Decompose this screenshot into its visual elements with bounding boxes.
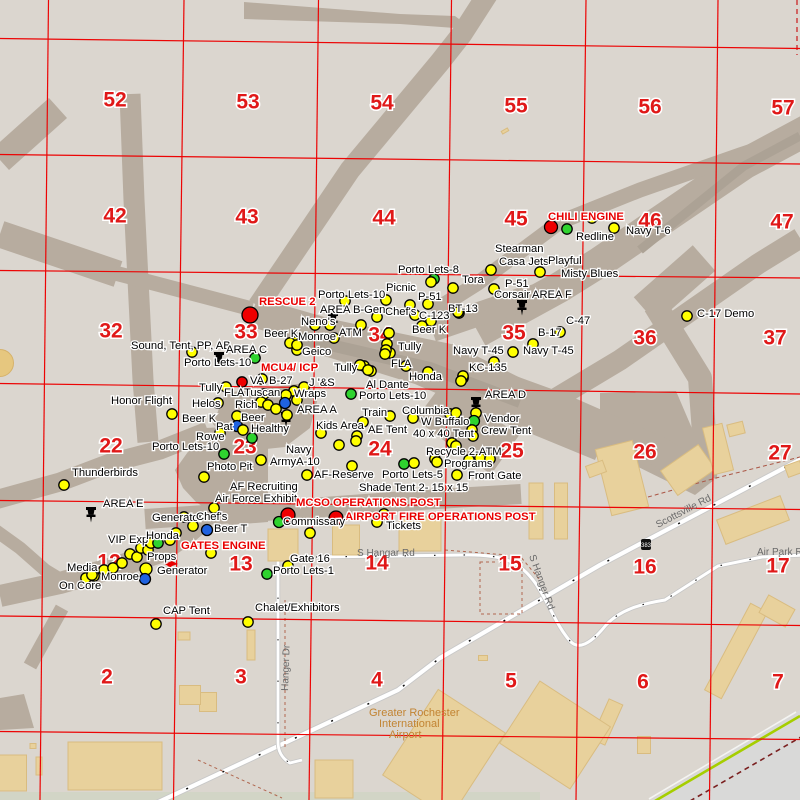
svg-text:43: 43 xyxy=(235,206,258,229)
svg-text:Media: Media xyxy=(67,562,98,574)
svg-text:Chef's: Chef's xyxy=(385,306,417,318)
svg-text:Honor Flight: Honor Flight xyxy=(111,395,173,407)
svg-text:Tickets: Tickets xyxy=(386,520,421,532)
svg-text:3: 3 xyxy=(235,666,247,689)
svg-text:Porto Lets-10: Porto Lets-10 xyxy=(359,390,426,402)
svg-text:Navy T-45: Navy T-45 xyxy=(523,345,574,357)
svg-text:Crew Tent: Crew Tent xyxy=(481,425,532,437)
svg-text:Honda: Honda xyxy=(409,371,443,383)
svg-text:Navy T-45: Navy T-45 xyxy=(453,345,504,357)
svg-text:45: 45 xyxy=(504,208,528,231)
svg-text:Chef's: Chef's xyxy=(196,511,228,523)
svg-text:Rich: Rich xyxy=(235,399,257,411)
svg-text:Generator: Generator xyxy=(157,565,208,577)
svg-text:Beer K: Beer K xyxy=(412,324,447,336)
svg-text:Monroe: Monroe xyxy=(298,331,336,343)
svg-text:7: 7 xyxy=(772,671,784,694)
svg-text:36: 36 xyxy=(633,327,656,350)
svg-text:B-27: B-27 xyxy=(269,375,293,387)
svg-text:C-123: C-123 xyxy=(419,310,449,322)
svg-text:BT-13: BT-13 xyxy=(448,303,478,315)
svg-text:Misty Blues: Misty Blues xyxy=(561,268,619,280)
svg-text:6: 6 xyxy=(637,671,649,694)
svg-text:55: 55 xyxy=(504,95,528,118)
svg-text:Porto Lets-8: Porto Lets-8 xyxy=(398,264,459,276)
svg-text:26: 26 xyxy=(633,441,656,464)
svg-text:53: 53 xyxy=(236,91,259,114)
svg-text:Chalet/Exhibitors: Chalet/Exhibitors xyxy=(255,602,340,614)
svg-text:Navy T-6: Navy T-6 xyxy=(626,225,671,237)
svg-text:CHILI ENGINE: CHILI ENGINE xyxy=(548,211,624,223)
svg-text:13: 13 xyxy=(229,553,252,576)
svg-text:Air Force Exhibit: Air Force Exhibit xyxy=(215,493,298,505)
svg-text:Redline: Redline xyxy=(576,231,614,243)
svg-text:Helos: Helos xyxy=(192,398,221,410)
svg-text:Porto Lets-1: Porto Lets-1 xyxy=(273,565,334,577)
svg-text:54: 54 xyxy=(370,92,394,115)
svg-text:Stearman: Stearman xyxy=(495,243,544,255)
svg-text:Commissary: Commissary xyxy=(283,516,346,528)
svg-text:42: 42 xyxy=(103,205,126,228)
svg-text:Geico: Geico xyxy=(302,346,331,358)
svg-text:Navy: Navy xyxy=(286,444,312,456)
svg-text:Neno's: Neno's xyxy=(301,316,336,328)
svg-text:4: 4 xyxy=(371,669,383,692)
svg-text:32: 32 xyxy=(99,320,122,343)
svg-text:Tully: Tully xyxy=(334,362,358,374)
svg-text:Healthy: Healthy xyxy=(251,423,289,435)
svg-text:VIP Exp: VIP Exp xyxy=(108,534,148,546)
svg-text:Wraps: Wraps xyxy=(294,388,327,400)
svg-text:Props: Props xyxy=(147,551,177,563)
svg-text:37: 37 xyxy=(763,327,786,350)
svg-text:AF Recruiting: AF Recruiting xyxy=(230,481,298,493)
svg-text:40 x 40 Tent: 40 x 40 Tent xyxy=(413,428,475,440)
svg-text:5: 5 xyxy=(505,670,517,693)
svg-text:VA: VA xyxy=(250,375,265,387)
svg-text:FLA: FLA xyxy=(391,358,412,370)
svg-text:Kids Area: Kids Area xyxy=(316,420,365,432)
svg-text:MCU4/ ICP: MCU4/ ICP xyxy=(261,362,319,374)
svg-text:Honda: Honda xyxy=(146,530,180,542)
svg-text:AREA B-Gen: AREA B-Gen xyxy=(320,304,385,316)
svg-text:Thunderbirds: Thunderbirds xyxy=(72,467,138,479)
svg-text:AREA A: AREA A xyxy=(297,404,337,416)
svg-text:Programs: Programs xyxy=(444,458,493,470)
svg-text:AIRPORT FIRE OPERATIONS POST: AIRPORT FIRE OPERATIONS POST xyxy=(345,511,536,523)
svg-text:52: 52 xyxy=(103,89,126,112)
svg-text:C-17 Demo: C-17 Demo xyxy=(697,308,754,320)
svg-text:Tully: Tully xyxy=(199,382,223,394)
svg-text:Beer K: Beer K xyxy=(182,413,217,425)
svg-text:Sound, Tent, PP, AB: Sound, Tent, PP, AB xyxy=(131,340,231,352)
svg-text:Tuscan: Tuscan xyxy=(244,387,280,399)
svg-text:Porto Lets-10: Porto Lets-10 xyxy=(152,441,219,453)
svg-text:Vendor: Vendor xyxy=(484,413,520,425)
svg-text:S Hangar Rd: S Hangar Rd xyxy=(357,548,415,559)
svg-text:Gate 16: Gate 16 xyxy=(290,553,330,565)
svg-text:2: 2 xyxy=(101,666,113,689)
svg-text:FLA: FLA xyxy=(224,387,245,399)
svg-text:Train: Train xyxy=(362,407,387,419)
svg-text:ATM: ATM xyxy=(339,327,362,339)
svg-text:Beer K: Beer K xyxy=(264,328,299,340)
svg-text:AREA F: AREA F xyxy=(532,289,572,301)
svg-text:ArmyA-10: ArmyA-10 xyxy=(270,456,320,468)
svg-text:33: 33 xyxy=(234,321,257,344)
svg-text:22: 22 xyxy=(99,435,122,458)
svg-text:56: 56 xyxy=(638,96,661,119)
svg-text:Beer T: Beer T xyxy=(214,523,248,535)
svg-text:B-17: B-17 xyxy=(538,327,562,339)
svg-text:57: 57 xyxy=(771,97,794,120)
svg-text:Corsair: Corsair xyxy=(494,289,530,301)
svg-text:Monroe: Monroe xyxy=(101,571,139,583)
svg-text:AE Tent: AE Tent xyxy=(368,424,408,436)
svg-text:AREA E: AREA E xyxy=(103,498,143,510)
svg-text:RESCUE 2: RESCUE 2 xyxy=(259,296,316,308)
svg-text:Porto Lets-5: Porto Lets-5 xyxy=(382,469,443,481)
svg-text:MCSO OPERATIONS POST: MCSO OPERATIONS POST xyxy=(296,497,441,509)
svg-text:15: 15 xyxy=(498,553,522,576)
svg-text:25: 25 xyxy=(500,440,524,463)
svg-text:W Buffalo: W Buffalo xyxy=(421,416,469,428)
svg-text:Playful: Playful xyxy=(548,255,582,267)
svg-text:Recycle 2-ATM: Recycle 2-ATM xyxy=(426,446,502,458)
svg-text:Picnic: Picnic xyxy=(386,282,416,294)
svg-text:AREA C: AREA C xyxy=(226,344,267,356)
svg-text:Air Park R: Air Park R xyxy=(757,547,800,558)
svg-text:AREA D: AREA D xyxy=(485,389,526,401)
svg-text:Airport: Airport xyxy=(389,729,421,741)
svg-text:Hanger Dr: Hanger Dr xyxy=(280,644,293,691)
svg-text:AF-Reserve: AF-Reserve xyxy=(314,469,374,481)
svg-text:Porto Lets-10: Porto Lets-10 xyxy=(318,289,385,301)
svg-text:383: 383 xyxy=(641,543,652,549)
svg-text:16: 16 xyxy=(633,556,656,579)
svg-text:Front Gate: Front Gate xyxy=(468,470,521,482)
svg-text:Photo Pit: Photo Pit xyxy=(207,461,253,473)
svg-text:C-47: C-47 xyxy=(566,315,590,327)
svg-text:24: 24 xyxy=(368,438,392,461)
svg-text:35: 35 xyxy=(502,322,526,345)
svg-text:Casa Jets: Casa Jets xyxy=(499,256,549,268)
svg-text:Tora: Tora xyxy=(462,274,485,286)
svg-text:On Core: On Core xyxy=(59,580,101,592)
svg-text:Shade Tent 2- 15 x 15: Shade Tent 2- 15 x 15 xyxy=(359,482,468,494)
svg-text:Tully: Tully xyxy=(398,341,422,353)
svg-text:44: 44 xyxy=(372,207,396,230)
svg-text:47: 47 xyxy=(770,211,793,234)
svg-text:GATES ENGINE: GATES ENGINE xyxy=(181,540,266,552)
svg-text:27: 27 xyxy=(768,442,791,465)
svg-text:P-51: P-51 xyxy=(418,291,442,303)
svg-text:Porto Lets-10: Porto Lets-10 xyxy=(184,357,251,369)
svg-text:KC-135: KC-135 xyxy=(469,362,507,374)
svg-text:CAP Tent: CAP Tent xyxy=(163,605,211,617)
